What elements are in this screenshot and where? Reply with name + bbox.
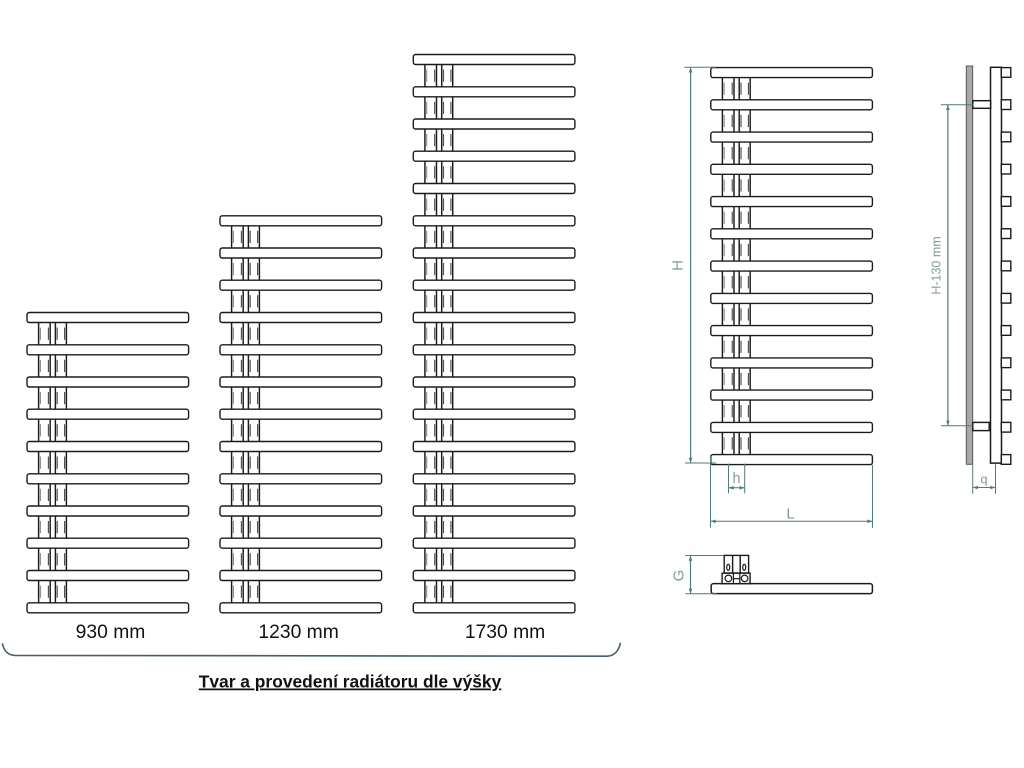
svg-text:Tvar a provedení radiátoru dle: Tvar a provedení radiátoru dle výšky — [199, 672, 502, 692]
svg-text:H-130 mm: H-130 mm — [930, 236, 944, 294]
svg-text:930 mm: 930 mm — [76, 622, 146, 643]
svg-text:G: G — [671, 570, 688, 582]
svg-text:L: L — [786, 506, 794, 523]
svg-text:H: H — [670, 260, 687, 271]
svg-text:1230 mm: 1230 mm — [258, 622, 338, 643]
svg-text:q: q — [980, 472, 987, 487]
svg-text:h: h — [732, 471, 740, 487]
svg-text:1730 mm: 1730 mm — [465, 622, 545, 643]
